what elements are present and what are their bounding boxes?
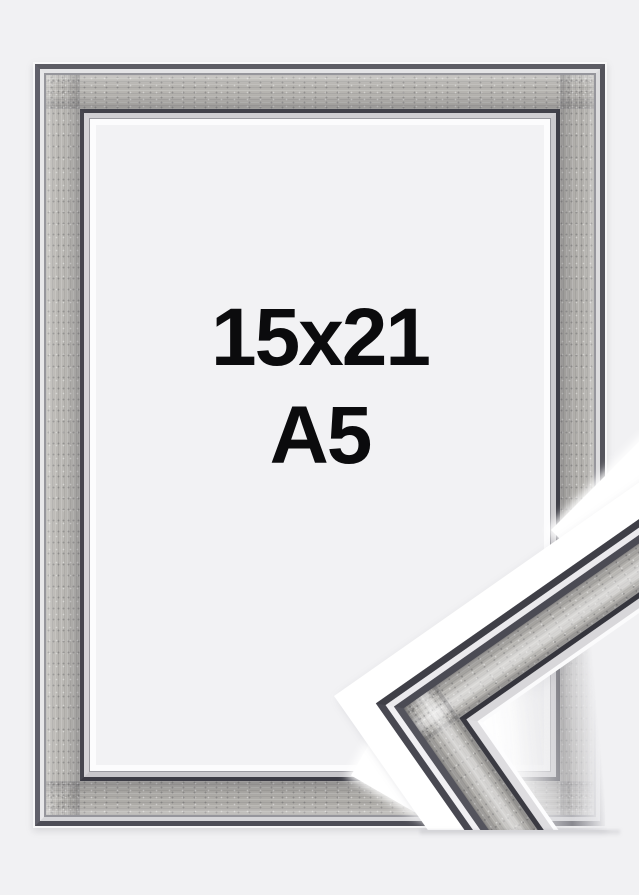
sample-silver-band — [404, 485, 639, 830]
product-photo: 15x21 A5 — [0, 0, 639, 895]
sample-bottom-shadow — [420, 830, 620, 836]
sample-groove — [459, 517, 639, 830]
sample-inner-edge — [477, 528, 639, 830]
corner-sample-area — [300, 430, 639, 830]
sample-light-strip — [386, 474, 639, 830]
sample-second-dark-line — [394, 479, 639, 830]
sample-outer-dark-line — [376, 468, 639, 830]
sample-inner-glow — [483, 531, 639, 830]
sample-inner-lip — [466, 521, 639, 830]
size-text-primary: 15x21 — [90, 289, 550, 387]
